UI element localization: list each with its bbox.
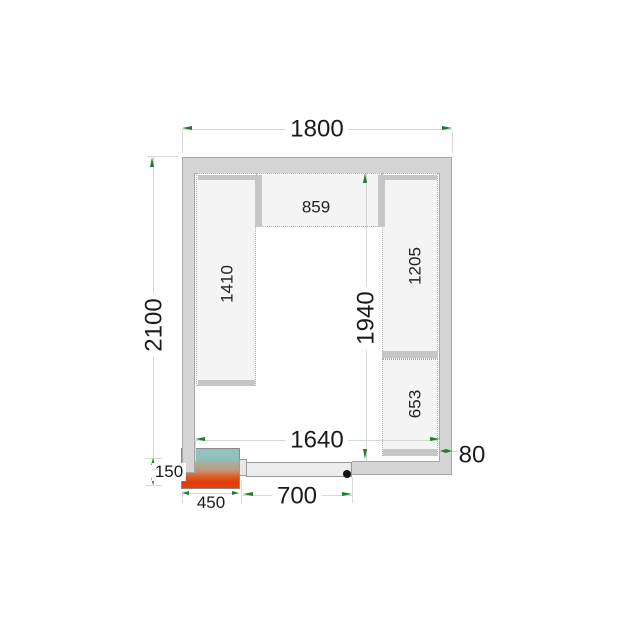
dim-arrow-icon bbox=[150, 157, 154, 167]
shelf-edge-bar bbox=[384, 175, 437, 180]
dim-1940-label: 1940 bbox=[353, 286, 378, 349]
dim-arrow-icon bbox=[442, 126, 452, 130]
dim-80-label: 80 bbox=[454, 442, 491, 467]
dim-arrow-icon bbox=[363, 449, 367, 459]
shelf-edge-bar bbox=[198, 380, 255, 386]
extension-line bbox=[241, 481, 242, 504]
dim-arrow-icon bbox=[342, 492, 352, 496]
shelf-edge-bar bbox=[378, 175, 385, 227]
shelf-edge-bar bbox=[382, 351, 438, 358]
dim-1800-label: 1800 bbox=[285, 116, 348, 141]
dim-arrow-icon bbox=[243, 492, 253, 496]
dim-arrow-icon bbox=[182, 126, 192, 130]
floor-plan: 859 1410 1205 653 1800 2100 1940 1640 70… bbox=[0, 0, 630, 630]
shelf-edge-bar bbox=[383, 449, 437, 456]
shelf-top-label: 859 bbox=[302, 199, 330, 216]
extension-line bbox=[182, 131, 183, 153]
dim-450-label: 450 bbox=[194, 494, 228, 512]
extension-line bbox=[452, 131, 453, 153]
dim-150-label: 150 bbox=[152, 463, 186, 481]
dim-arrow-icon bbox=[446, 449, 452, 453]
extension-line bbox=[146, 485, 162, 486]
dim-arrow-icon bbox=[232, 491, 239, 495]
dim-1640-label: 1640 bbox=[285, 427, 348, 452]
dim-700-label: 700 bbox=[272, 483, 322, 508]
door-handle-dot bbox=[343, 470, 351, 478]
shelf-right-upper-label: 1205 bbox=[407, 247, 424, 285]
extension-line bbox=[195, 441, 196, 461]
door-panel bbox=[246, 462, 352, 477]
shelf-edge-bar bbox=[255, 175, 262, 227]
dim-arrow-icon bbox=[363, 173, 367, 183]
dim-arrow-icon bbox=[195, 437, 205, 441]
shelf-left-label: 1410 bbox=[219, 265, 236, 303]
shelf-edge-bar bbox=[198, 175, 255, 180]
dim-arrow-icon bbox=[430, 437, 440, 441]
shelf-right-lower-label: 653 bbox=[407, 390, 424, 418]
dim-arrow-icon bbox=[182, 491, 189, 495]
dim-2100-label: 2100 bbox=[141, 293, 166, 356]
extension-line bbox=[352, 477, 353, 503]
